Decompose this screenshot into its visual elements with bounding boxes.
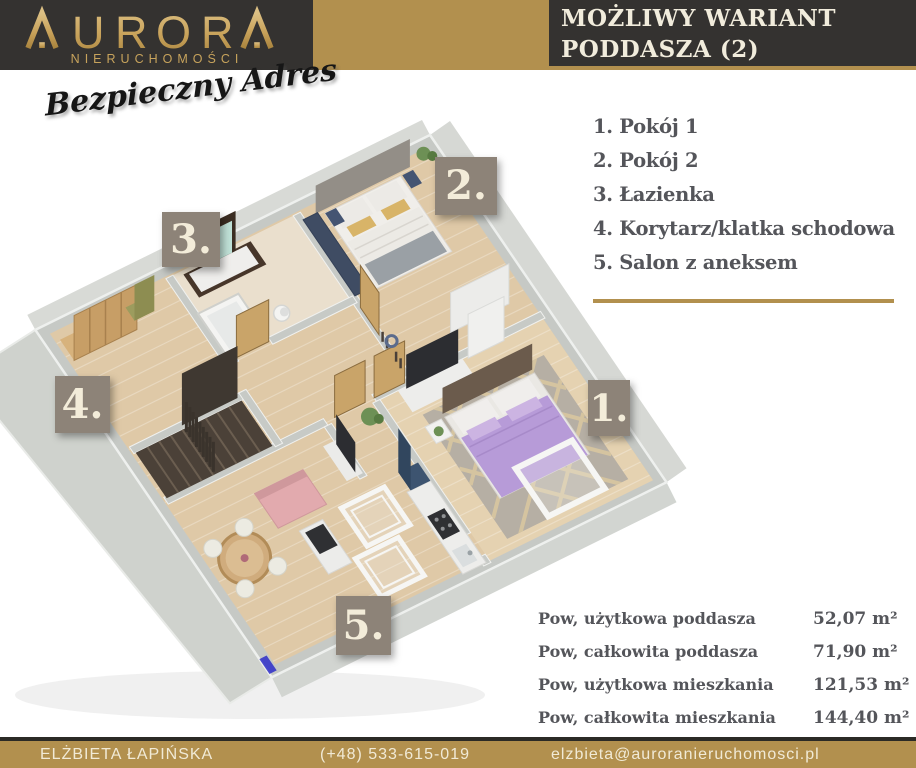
measurement-label: Pow, użytkowa poddasza <box>538 609 813 628</box>
measurement-row: Pow, całkowita poddasza 71,90 m² <box>538 642 910 662</box>
page-title-line2: PODDASZA (2) <box>561 34 916 65</box>
flyer-page: UROR NIERUCHOMOŚCI MOŻLIWY WARIANT PODDA… <box>0 0 916 768</box>
agent-phone: (+48) 533-615-019 <box>320 746 470 764</box>
svg-text:R: R <box>201 7 234 58</box>
svg-text:R: R <box>115 7 148 58</box>
room-1-furniture <box>398 297 605 517</box>
hall-doors <box>236 266 404 418</box>
svg-text:O: O <box>156 7 191 58</box>
aurora-logo: UROR NIERUCHOMOŚCI <box>0 0 313 70</box>
plan-label-room-4: 4. <box>55 376 110 433</box>
header-title-box: MOŻLIWY WARIANT PODDASZA (2) <box>549 0 916 70</box>
logo-subtitle: NIERUCHOMOŚCI <box>71 51 244 66</box>
legend-item-3: 3. Łazienka <box>593 178 895 212</box>
agent-name: ELŻBIETA ŁAPIŃSKA <box>40 746 213 764</box>
measurement-value: 71,90 m² <box>813 642 898 662</box>
plan-label-room-3: 3. <box>162 212 220 267</box>
measurement-row: Pow, użytkowa mieszkania 121,53 m² <box>538 675 910 695</box>
measurement-value: 144,40 m² <box>813 708 909 728</box>
legend-item-5: 5. Salon z aneksem <box>593 246 895 280</box>
room-legend: 1. Pokój 1 2. Pokój 2 3. Łazienka 4. Kor… <box>593 110 895 280</box>
rug-lattice <box>369 281 656 585</box>
measurement-value: 121,53 m² <box>813 675 909 695</box>
aurora-logo-svg: UROR NIERUCHOMOŚCI <box>0 0 313 70</box>
measurement-row: Pow, całkowita mieszkania 144,40 m² <box>538 708 910 728</box>
agent-email: elzbieta@auroranieruchomosci.pl <box>551 746 820 764</box>
corridor-furniture <box>60 275 273 498</box>
page-title-line1: MOŻLIWY WARIANT <box>561 3 916 34</box>
contact-footer: ELŻBIETA ŁAPIŃSKA (+48) 533-615-019 elzb… <box>0 737 916 768</box>
living-room-furniture <box>204 408 384 598</box>
measurement-value: 52,07 m² <box>813 609 898 629</box>
area-measurements: Pow, użytkowa poddasza 52,07 m² Pow, cał… <box>538 609 910 741</box>
measurement-label: Pow, całkowita poddasza <box>538 642 813 661</box>
plan-label-room-2: 2. <box>435 157 497 215</box>
plan-walls <box>129 212 545 566</box>
room-2-furniture <box>303 139 509 333</box>
svg-text:U: U <box>72 7 105 58</box>
legend-item-2: 2. Pokój 2 <box>593 144 895 178</box>
plan-label-room-1: 1. <box>588 380 630 436</box>
header-gold-block <box>313 0 549 70</box>
measurement-row: Pow, użytkowa poddasza 52,07 m² <box>538 609 910 629</box>
measurement-label: Pow, użytkowa mieszkania <box>538 675 813 694</box>
plan-floor-planks <box>57 158 650 662</box>
legend-item-1: 1. Pokój 1 <box>593 110 895 144</box>
bathroom-fixtures <box>183 211 289 357</box>
legend-item-4: 4. Korytarz/klatka schodowa <box>593 212 895 246</box>
logo-wordmark: UROR <box>28 7 271 58</box>
kitchen-furniture <box>299 428 486 597</box>
legend-divider <box>593 299 894 303</box>
plan-label-room-5: 5. <box>336 596 391 655</box>
measurement-label: Pow, całkowita mieszkania <box>538 708 813 727</box>
